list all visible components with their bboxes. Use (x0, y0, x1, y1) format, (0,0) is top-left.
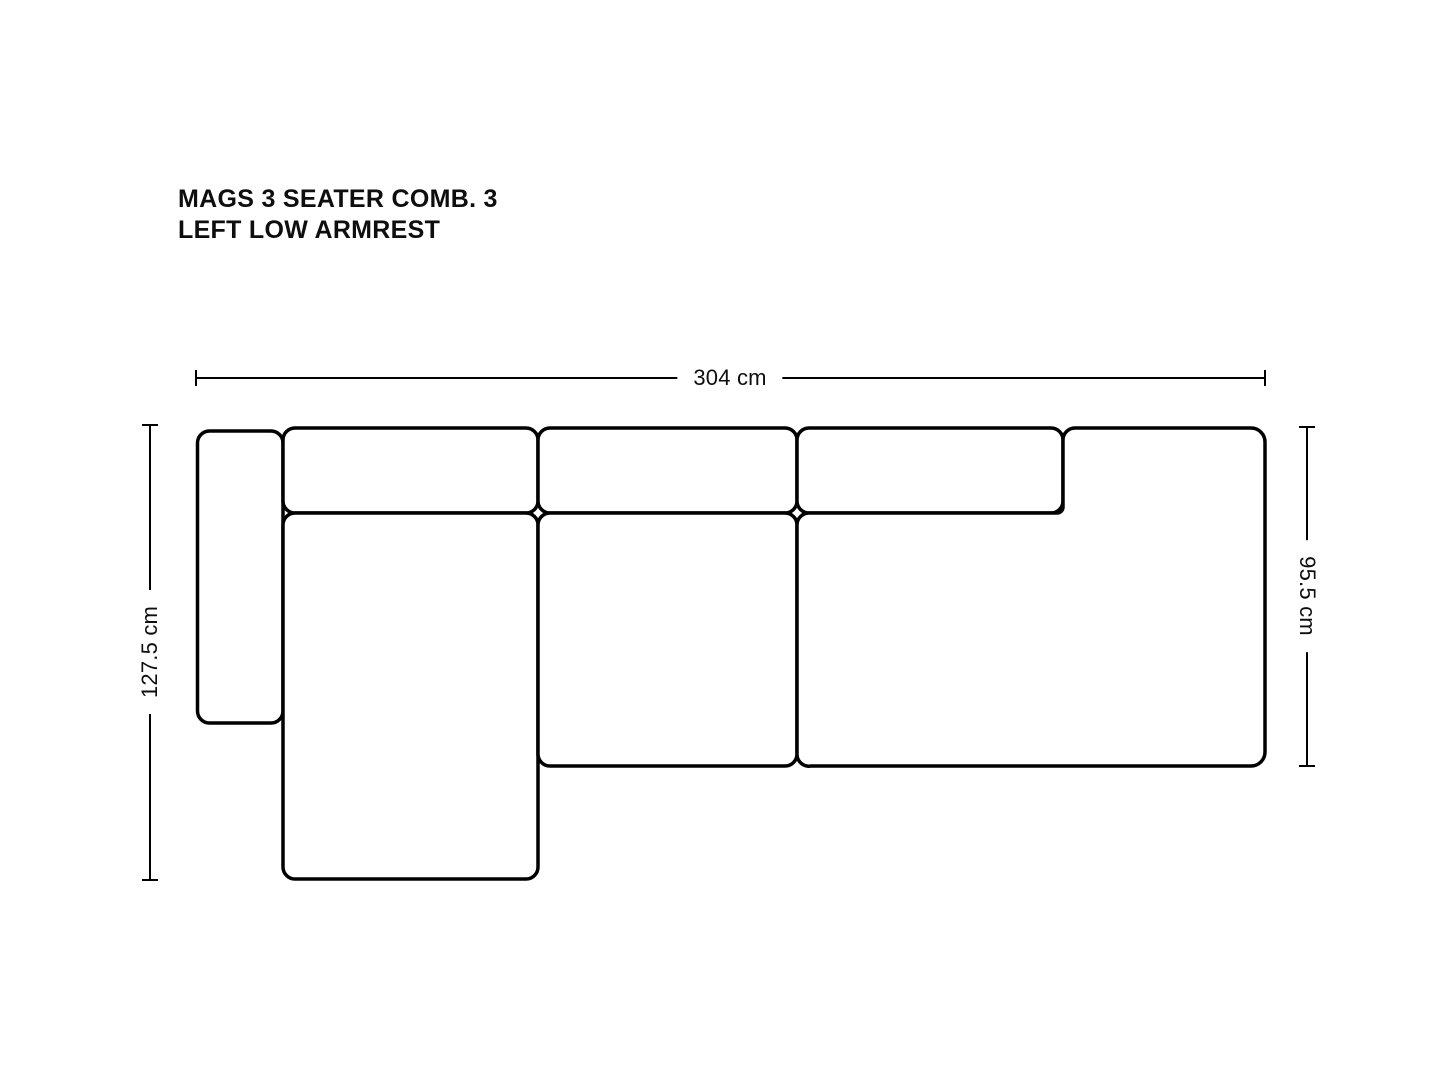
module-chaise-longue-seat (283, 513, 538, 879)
dimension-label-depth-left: 127.5 cm (137, 590, 163, 714)
module-middle-seat (538, 513, 797, 766)
module-left-low-armrest (198, 431, 284, 723)
module-back-cushion-2 (538, 428, 797, 513)
sofa-top-view-diagram (0, 0, 1445, 1087)
product-dimension-page: MAGS 3 SEATER COMB. 3 LEFT LOW ARMREST 3… (0, 0, 1445, 1087)
module-back-cushion-3 (797, 428, 1063, 513)
dimension-label-depth-right: 95.5 cm (1294, 540, 1320, 652)
dimension-label-width: 304 cm (677, 365, 782, 391)
module-back-cushion-1 (283, 428, 538, 513)
